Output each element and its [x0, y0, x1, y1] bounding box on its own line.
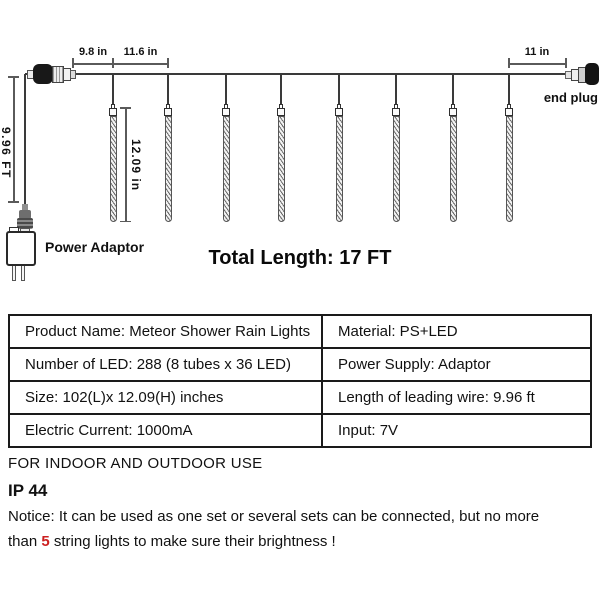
spec-cell: Size: 102(L)x 12.09(H) inches [9, 381, 322, 414]
product-spec-sheet: 9.8 in 11.6 in 11 in end plug 9.96 FT [0, 0, 600, 600]
dimension-line-left [72, 63, 168, 65]
light-tube [505, 74, 513, 222]
main-wire [25, 73, 568, 75]
light-tube [222, 74, 230, 222]
notice-text: Notice: It can be used as one set or sev… [8, 504, 583, 554]
spec-cell: Number of LED: 288 (8 tubes x 36 LED) [9, 348, 322, 381]
table-row: Product Name: Meteor Shower Rain Lights … [9, 315, 591, 348]
ip-rating: IP 44 [8, 481, 47, 501]
light-tube [164, 74, 172, 222]
light-tube [109, 74, 117, 222]
table-row: Electric Current: 1000mA Input: 7V [9, 414, 591, 447]
dimension-line-tube-height [125, 107, 127, 222]
end-plug-label: end plug [530, 90, 598, 105]
dimension-line-right [508, 63, 566, 65]
dim-label-tube-length: 12.09 in [128, 115, 144, 215]
usage-statement: FOR INDOOR AND OUTDOOR USE [8, 455, 262, 472]
spec-cell: Electric Current: 1000mA [9, 414, 322, 447]
notice-line2: than 5 string lights to make sure their … [8, 529, 583, 554]
spec-cell: Length of leading wire: 9.96 ft [322, 381, 591, 414]
spec-cell: Power Supply: Adaptor [322, 348, 591, 381]
dim-label-lead-gap: 9.8 in [70, 46, 116, 58]
light-tube [335, 74, 343, 222]
notice-line1: Notice: It can be used as one set or sev… [8, 504, 583, 529]
notice-highlight-number: 5 [41, 533, 49, 550]
spec-cell: Material: PS+LED [322, 315, 591, 348]
spec-cell: Product Name: Meteor Shower Rain Lights [9, 315, 322, 348]
light-tube [392, 74, 400, 222]
spec-cell: Input: 7V [322, 414, 591, 447]
dim-label-tube-gap: 11.6 in [113, 46, 168, 58]
table-row: Size: 102(L)x 12.09(H) inches Length of … [9, 381, 591, 414]
table-row: Number of LED: 288 (8 tubes x 36 LED) Po… [9, 348, 591, 381]
light-tube [277, 74, 285, 222]
total-length-label: Total Length: 17 FT [0, 247, 600, 270]
dim-label-lead-wire-length: 9.96 FT [0, 100, 14, 205]
light-tube [449, 74, 457, 222]
dim-label-end-gap: 11 in [508, 46, 566, 58]
spec-table: Product Name: Meteor Shower Rain Lights … [8, 314, 592, 448]
lead-wire [24, 74, 26, 205]
